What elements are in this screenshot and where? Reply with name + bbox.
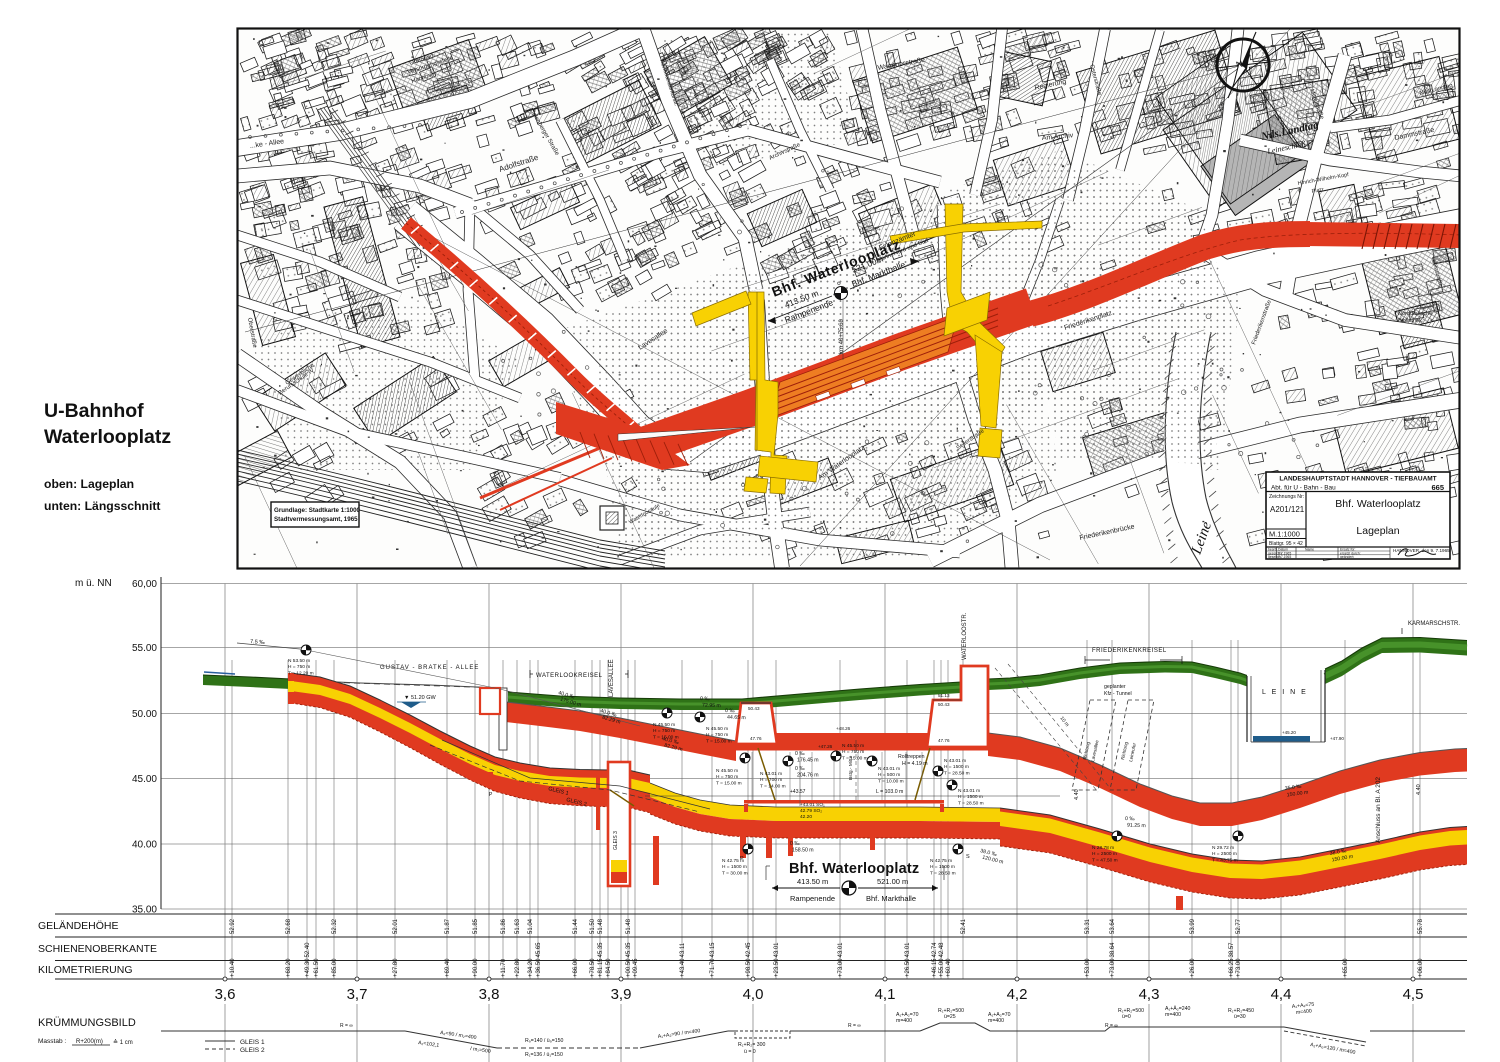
svg-text:N 45.50 m: N 45.50 m: [653, 722, 675, 728]
svg-text:50.43: 50.43: [938, 702, 950, 707]
svg-text:43.11: 43.11: [680, 942, 686, 957]
svg-text:m ü. NN: m ü. NN: [75, 578, 112, 589]
svg-text:38.64: 38.64: [1110, 942, 1116, 958]
svg-text:H = 2500 m: H = 2500 m: [1092, 851, 1117, 857]
svg-text:42.48: 42.48: [939, 942, 945, 958]
svg-text:WATERLOOSTR.: WATERLOOSTR.: [962, 612, 968, 660]
svg-text:+73.00: +73.00: [838, 958, 844, 977]
svg-text:N 43.01 m: N 43.01 m: [958, 788, 980, 794]
svg-text:R₉=140 / ü₉=150: R₉=140 / ü₉=150: [525, 1038, 564, 1044]
svg-text:N 45.50 m: N 45.50 m: [706, 726, 728, 732]
svg-text:50.00: 50.00: [132, 709, 157, 720]
svg-text:+78.50: +78.50: [590, 958, 596, 977]
svg-text:N 28.78 m: N 28.78 m: [1092, 845, 1114, 851]
svg-text:Bibliothek: Bibliothek: [1398, 318, 1422, 324]
svg-text:unten: Längsschnitt: unten: Längsschnitt: [44, 499, 160, 513]
svg-text:53.99: 53.99: [1190, 918, 1196, 934]
svg-text:+23.50: +23.50: [774, 958, 780, 977]
svg-text:Masstab :: Masstab :: [38, 1038, 66, 1045]
svg-text:H = 750 m: H = 750 m: [706, 732, 728, 738]
svg-text:H = 1500 m: H = 1500 m: [930, 864, 955, 870]
svg-text:+06.00: +06.00: [1418, 958, 1424, 977]
svg-text:52.68: 52.68: [286, 918, 292, 934]
svg-text:L E I N E: L E I N E: [1262, 689, 1308, 696]
svg-text:+26.00: +26.00: [1190, 958, 1196, 977]
svg-text:KARMARSCHSTR.: KARMARSCHSTR.: [1408, 621, 1460, 627]
svg-text:WATERLOOKREISEL: WATERLOOKREISEL: [536, 673, 603, 679]
svg-text:42.74: 42.74: [932, 942, 938, 958]
svg-text:T = 15.00 m: T = 15.00 m: [842, 755, 868, 761]
svg-text:43.15: 43.15: [710, 942, 716, 958]
svg-text:GLEIS 2: GLEIS 2: [240, 1047, 265, 1054]
svg-text:H = 4.19 m: H = 4.19 m: [902, 761, 928, 767]
svg-text:+43.01 SO₁: +43.01 SO₁: [800, 802, 825, 808]
svg-text:51.86: 51.86: [501, 918, 507, 934]
svg-text:ü=25: ü=25: [944, 1014, 956, 1020]
svg-text:+27.80: +27.80: [393, 958, 399, 977]
svg-text:T = 28.50 m: T = 28.50 m: [944, 770, 970, 776]
svg-text:Rolltreppen: Rolltreppen: [898, 754, 925, 760]
svg-text:H = 700 m: H = 700 m: [760, 777, 782, 783]
svg-text:3,9: 3,9: [611, 986, 632, 1003]
svg-text:51.44: 51.44: [573, 918, 579, 934]
svg-text:▼ 51.20 GW: ▼ 51.20 GW: [404, 695, 437, 701]
svg-text:H = 1500 m: H = 1500 m: [722, 864, 747, 870]
svg-text:0 ‰: 0 ‰: [700, 696, 711, 702]
svg-text:+84.50: +84.50: [606, 958, 612, 977]
svg-text:+45.20: +45.20: [1282, 730, 1296, 735]
svg-text:43.01: 43.01: [905, 942, 911, 958]
svg-text:45.35: 45.35: [598, 942, 604, 958]
svg-text:45.65: 45.65: [536, 942, 542, 958]
svg-text:geändert:: geändert:: [1340, 555, 1354, 559]
svg-text:H = 750 m: H = 750 m: [842, 749, 864, 755]
svg-text:4,1: 4,1: [875, 986, 896, 1003]
svg-text:47.76: 47.76: [938, 738, 950, 743]
svg-text:H = 750 m: H = 750 m: [288, 664, 310, 670]
svg-text:H = 750 m: H = 750 m: [716, 774, 738, 780]
svg-text:3,8: 3,8: [479, 986, 500, 1003]
svg-text:+10.40: +10.40: [230, 958, 236, 977]
svg-text:P: P: [740, 856, 744, 862]
svg-text:N 43.01 m: N 43.01 m: [944, 758, 966, 764]
svg-text:R+200(m): R+200(m): [76, 1039, 103, 1045]
svg-text:N 43.01 m: N 43.01 m: [760, 771, 782, 777]
svg-text:T = 28.50 m: T = 28.50 m: [930, 870, 956, 876]
svg-text:72.95 m: 72.95 m: [702, 703, 721, 710]
svg-text:4,3: 4,3: [1139, 986, 1160, 1003]
svg-text:+53.00: +53.00: [1085, 958, 1091, 977]
svg-text:60,00: 60,00: [132, 579, 157, 590]
svg-text:0 ‰: 0 ‰: [1125, 816, 1136, 822]
svg-text:158.50 m: 158.50 m: [792, 848, 814, 854]
svg-text:oben: Lageplan: oben: Lageplan: [44, 477, 134, 491]
svg-text:GELÄNDEHÖHE: GELÄNDEHÖHE: [38, 920, 119, 932]
svg-text:FRIEDERIKENKREISEL: FRIEDERIKENKREISEL: [1092, 648, 1167, 654]
svg-text:51.48: 51.48: [598, 918, 604, 934]
svg-text:N 45.50 m: N 45.50 m: [716, 768, 738, 774]
svg-text:Rampenende: Rampenende: [790, 894, 835, 903]
svg-text:T = 43.75 m: T = 43.75 m: [1212, 857, 1238, 863]
svg-text:LAVESALLEE: LAVESALLEE: [609, 659, 615, 697]
svg-text:+60.40: +60.40: [946, 958, 952, 977]
svg-text:+26.50: +26.50: [905, 958, 911, 977]
svg-text:+90.00: +90.00: [473, 958, 479, 977]
svg-text:Abt. für U - Bahn - Bau: Abt. für U - Bahn - Bau: [1271, 485, 1336, 492]
svg-text:+66.25: +66.25: [1229, 958, 1235, 977]
svg-text:43.01: 43.01: [774, 942, 780, 958]
svg-text:Stadtvermessungsamt, 1965: Stadtvermessungsamt, 1965: [274, 516, 358, 523]
svg-text:R₁+R₂= 300: R₁+R₂= 300: [738, 1042, 766, 1048]
svg-text:m=400: m=400: [988, 1018, 1004, 1024]
svg-text:42.79 SO₂: 42.79 SO₂: [800, 808, 822, 814]
svg-text:50.43: 50.43: [748, 706, 760, 711]
svg-text:+71.70: +71.70: [710, 958, 716, 977]
svg-text:+66.00: +66.00: [573, 958, 579, 977]
svg-text:H = 1500 m: H = 1500 m: [944, 764, 969, 770]
svg-text:Lageplan: Lageplan: [1356, 525, 1399, 537]
svg-text:55.00: 55.00: [132, 643, 157, 654]
svg-text:52.77: 52.77: [1236, 918, 1242, 934]
svg-text:Kfz - Tunnel: Kfz - Tunnel: [1104, 691, 1132, 697]
svg-text:4.40: 4.40: [1074, 789, 1080, 800]
svg-text:+47.26: +47.26: [818, 744, 833, 749]
svg-text:51.04: 51.04: [528, 918, 534, 934]
svg-text:+85.00: +85.00: [332, 958, 338, 977]
svg-text:43.01: 43.01: [838, 942, 844, 958]
svg-text:H = 500 m: H = 500 m: [878, 772, 900, 778]
svg-text:N 43.01 m: N 43.01 m: [878, 766, 900, 772]
svg-text:Zeichnungs Nr:: Zeichnungs Nr:: [1269, 494, 1304, 500]
svg-text:Grundlage: Stadtkarte 1:1000: Grundlage: Stadtkarte 1:1000: [274, 507, 361, 514]
svg-text:U-Bahnhof: U-Bahnhof: [44, 400, 144, 422]
svg-text:+43.57: +43.57: [790, 789, 806, 795]
svg-text:204.76 m: 204.76 m: [797, 773, 819, 779]
svg-text:Blattgr. 95 × 42: Blattgr. 95 × 42: [1269, 541, 1303, 547]
svg-text:51.85: 51.85: [473, 918, 479, 934]
svg-text:Bhf. Waterlooplatz: Bhf. Waterlooplatz: [1335, 498, 1420, 510]
svg-text:+49.30: +49.30: [305, 958, 311, 977]
svg-text:A₁+Ā₂=240: A₁+Ā₂=240: [1165, 1005, 1191, 1012]
svg-text:T = 15.00 m: T = 15.00 m: [706, 738, 732, 744]
svg-text:+00.50: +00.50: [626, 958, 632, 977]
svg-text:0 ‰: 0 ‰: [790, 841, 800, 847]
svg-text:+73.00: +73.00: [1236, 958, 1242, 977]
svg-text:0 ‰: 0 ‰: [795, 751, 805, 757]
svg-text:T = 12.20 m: T = 12.20 m: [288, 670, 314, 676]
svg-text:+65.00: +65.00: [1343, 958, 1349, 977]
svg-text:+47.90: +47.90: [1330, 736, 1344, 741]
svg-text:H = 750 m: H = 750 m: [653, 728, 675, 734]
svg-text:T = 30.00 m: T = 30.00 m: [722, 870, 748, 876]
svg-text:T = 10.00 m: T = 10.00 m: [878, 778, 904, 784]
svg-text:176.45 m: 176.45 m: [797, 758, 819, 764]
svg-text:geplanter: geplanter: [1104, 684, 1126, 690]
svg-text:51.87: 51.87: [445, 918, 451, 934]
svg-text:m=400: m=400: [1165, 1012, 1181, 1018]
svg-text:T = 47.50 m: T = 47.50 m: [1092, 857, 1118, 863]
svg-text:+22.80: +22.80: [515, 958, 521, 977]
svg-text:ü = 0: ü = 0: [744, 1049, 756, 1055]
svg-text:0 ‰: 0 ‰: [795, 766, 805, 772]
svg-text:H = 2500 m: H = 2500 m: [1212, 851, 1237, 857]
svg-text:+34.20: +34.20: [528, 958, 534, 977]
svg-text:42.20: 42.20: [800, 814, 812, 820]
svg-text:+98.50: +98.50: [746, 958, 752, 977]
svg-text:+43.40: +43.40: [680, 958, 686, 977]
svg-text:≙ 1 cm: ≙ 1 cm: [113, 1039, 133, 1046]
svg-text:3,6: 3,6: [215, 986, 236, 1003]
svg-text:+09.45: +09.45: [633, 958, 639, 977]
svg-text:+73.00: +73.00: [1110, 958, 1116, 977]
svg-text:4,5: 4,5: [1403, 986, 1424, 1003]
svg-text:R = ∞: R = ∞: [1105, 1023, 1118, 1029]
svg-text:+61.50: +61.50: [314, 958, 320, 977]
svg-text:53.31: 53.31: [1085, 918, 1091, 934]
svg-text:m=400: m=400: [896, 1018, 912, 1024]
svg-text:42.45: 42.45: [746, 942, 752, 958]
svg-text:KILOMETRIERUNG: KILOMETRIERUNG: [38, 964, 133, 976]
svg-text:51.63: 51.63: [515, 918, 521, 934]
svg-text:Bhf. Markthalle: Bhf. Markthalle: [866, 894, 916, 903]
svg-text:S: S: [966, 854, 970, 860]
svg-text:52.40: 52.40: [305, 942, 311, 958]
svg-text:+36.50: +36.50: [536, 958, 542, 977]
svg-text:665: 665: [1431, 483, 1444, 492]
svg-text:40.00: 40.00: [132, 840, 157, 851]
svg-text:52.32: 52.32: [332, 918, 338, 934]
svg-text:45.35: 45.35: [626, 942, 632, 958]
svg-text:38.57: 38.57: [1229, 942, 1235, 958]
svg-text:+55.00: +55.00: [939, 958, 945, 977]
svg-text:Name: Name: [1305, 547, 1314, 551]
svg-text:N 42.75 m: N 42.75 m: [930, 858, 952, 864]
svg-text:T = 15.00 m: T = 15.00 m: [716, 780, 742, 786]
svg-text:4,0: 4,0: [743, 986, 764, 1003]
svg-text:N 29.72 m: N 29.72 m: [1212, 845, 1234, 851]
svg-text:51.13: 51.13: [938, 693, 950, 698]
svg-text:km 40+75.60: km 40+75.60: [839, 318, 845, 354]
svg-text:521.00 m: 521.00 m: [877, 877, 908, 886]
svg-text:SCHIENENOBERKANTE: SCHIENENOBERKANTE: [38, 943, 157, 955]
svg-text:T = 28.50 m: T = 28.50 m: [958, 800, 984, 806]
svg-text:47.76: 47.76: [750, 736, 762, 741]
svg-text:+68.20: +68.20: [286, 958, 292, 977]
svg-text:7.5 ‰: 7.5 ‰: [250, 639, 266, 646]
svg-text:52.01: 52.01: [393, 918, 399, 934]
svg-text:+81.15: +81.15: [598, 958, 604, 977]
svg-text:N 53.50 m: N 53.50 m: [288, 658, 310, 664]
svg-text:Bhf. Waterlooplatz: Bhf. Waterlooplatz: [789, 861, 919, 877]
svg-text:4,4: 4,4: [1271, 986, 1292, 1003]
svg-text:Bstg.- Mitte: Bstg.- Mitte: [848, 755, 854, 780]
svg-text:Anschluss an Bl. A 202: Anschluss an Bl. A 202: [1375, 777, 1382, 844]
svg-text:N 45.50 m: N 45.50 m: [842, 743, 864, 749]
svg-text:ü=0: ü=0: [1122, 1014, 1131, 1020]
svg-text:Norddeutsche: Norddeutsche: [1398, 311, 1432, 317]
svg-text:0 ‰: 0 ‰: [725, 708, 736, 714]
svg-text:7.7.1965: 7.7.1965: [1278, 555, 1291, 559]
svg-text:GLEIS 3: GLEIS 3: [613, 831, 619, 850]
svg-text:KRÜMMUNGSBILD: KRÜMMUNGSBILD: [38, 1017, 136, 1029]
svg-text:52.41: 52.41: [961, 918, 967, 934]
svg-text:52.92: 52.92: [230, 918, 236, 934]
svg-text:51.50: 51.50: [590, 918, 596, 934]
svg-text:91.25 m: 91.25 m: [1127, 823, 1146, 830]
svg-text:51.48: 51.48: [626, 918, 632, 934]
svg-text:ü=30: ü=30: [1234, 1014, 1246, 1020]
svg-text:M.1:1000: M.1:1000: [1269, 530, 1300, 539]
svg-text:R = ∞: R = ∞: [340, 1023, 353, 1029]
svg-text:T = 14.00 m: T = 14.00 m: [760, 783, 786, 789]
svg-text:Waterlooplatz: Waterlooplatz: [44, 426, 171, 448]
svg-text:GLEIS 1: GLEIS 1: [240, 1039, 265, 1046]
svg-text:+46.15: +46.15: [932, 958, 938, 977]
svg-text:44.65 m: 44.65 m: [727, 715, 746, 722]
svg-text:LANDESHAUPTSTADT HANNOVER - T: LANDESHAUPTSTADT HANNOVER - TIEFBAUAMT: [1279, 476, 1436, 483]
svg-text:413.50 m: 413.50 m: [797, 877, 828, 886]
svg-text:H = 1500 m: H = 1500 m: [958, 794, 983, 800]
svg-text:A201/121: A201/121: [1270, 505, 1305, 514]
svg-text:55.78: 55.78: [1418, 918, 1424, 934]
svg-text:53.64: 53.64: [1110, 918, 1116, 934]
svg-text:R = ∞: R = ∞: [848, 1023, 861, 1029]
svg-text:45.00: 45.00: [132, 774, 157, 785]
svg-text:+69.40: +69.40: [445, 958, 451, 977]
svg-text:+48.26: +48.26: [836, 726, 851, 731]
svg-text:4,2: 4,2: [1007, 986, 1028, 1003]
svg-text:L = 103.0 m: L = 103.0 m: [876, 789, 903, 795]
svg-text:+11.70: +11.70: [501, 958, 507, 977]
svg-text:4.40: 4.40: [1416, 784, 1422, 795]
svg-text:3,7: 3,7: [347, 986, 368, 1003]
svg-text:R₁=136 / ü₁=150: R₁=136 / ü₁=150: [525, 1052, 563, 1058]
